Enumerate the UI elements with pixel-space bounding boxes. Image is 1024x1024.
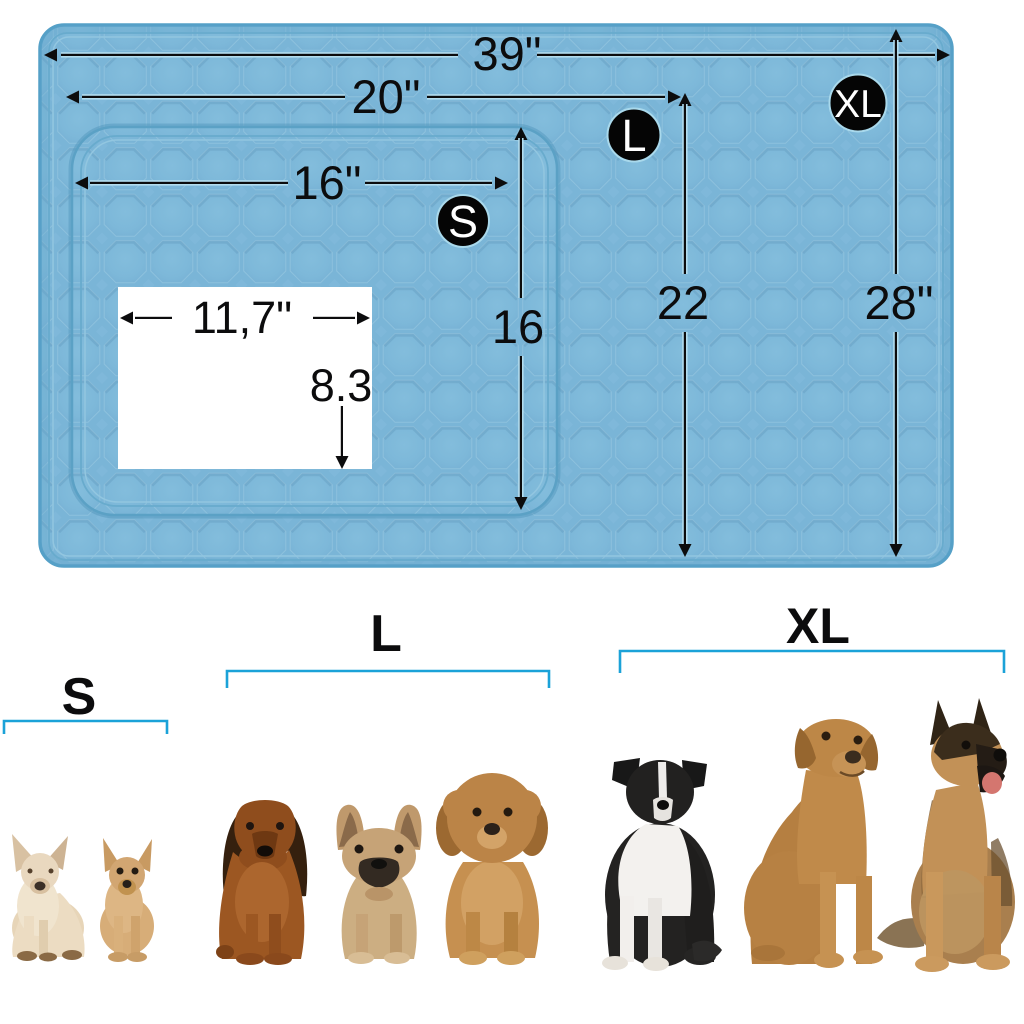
svg-text:22: 22	[657, 276, 709, 329]
svg-text:28": 28"	[865, 276, 934, 329]
svg-text:16: 16	[492, 300, 544, 353]
svg-text:16": 16"	[293, 156, 362, 209]
svg-text:11,7": 11,7"	[192, 292, 292, 343]
svg-text:S: S	[62, 668, 97, 726]
svg-text:XL: XL	[834, 83, 882, 126]
svg-text:L: L	[370, 605, 402, 663]
svg-text:XL: XL	[786, 598, 850, 654]
svg-text:L: L	[621, 110, 646, 161]
svg-text:20": 20"	[352, 70, 421, 123]
svg-text:S: S	[448, 196, 478, 247]
svg-text:39": 39"	[473, 27, 542, 80]
svg-text:8.3: 8.3	[310, 360, 373, 411]
